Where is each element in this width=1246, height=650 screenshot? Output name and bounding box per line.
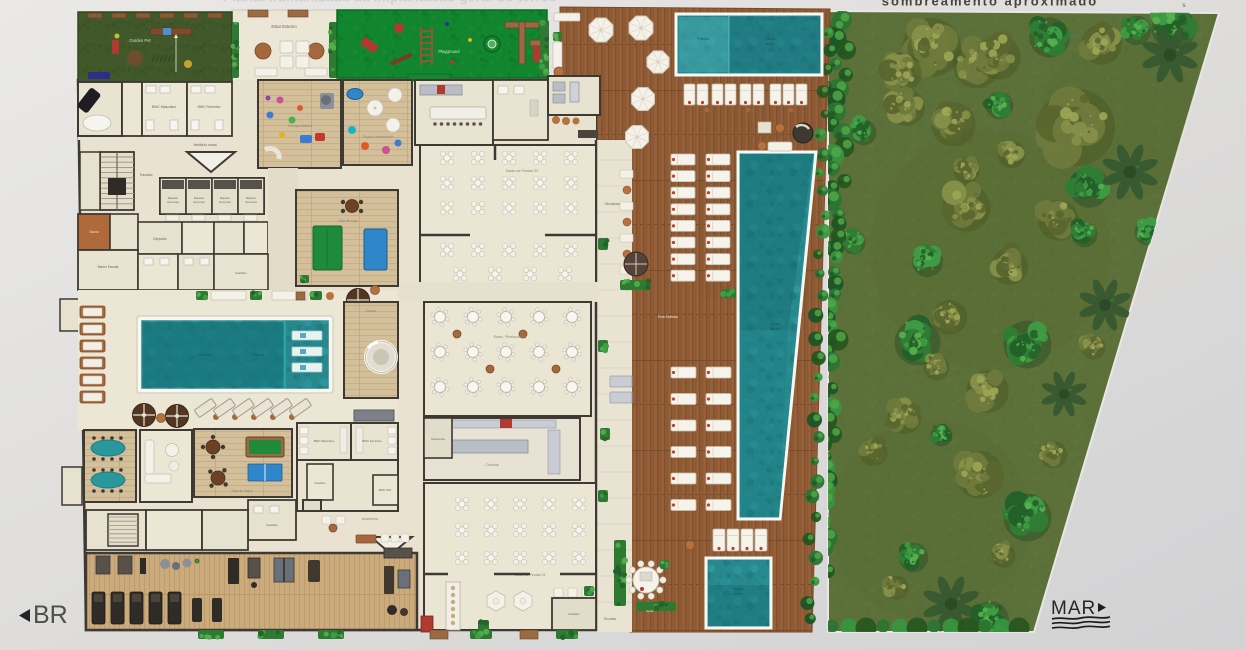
svg-text:Sala de Yoga: Sala de Yoga	[338, 219, 358, 223]
svg-text:Piscina: Piscina	[733, 587, 744, 591]
svg-text:adulto: adulto	[766, 42, 775, 46]
svg-text:Travador: Travador	[139, 173, 153, 177]
svg-text:sombreamento aproximado: sombreamento aproximado	[882, 0, 1099, 9]
svg-text:Playground: Playground	[438, 49, 460, 54]
svg-text:Vestibulo social: Vestibulo social	[193, 143, 217, 147]
svg-text:Gourmet: Gourmet	[193, 200, 205, 204]
svg-text:Brinquedoteca: Brinquedoteca	[288, 124, 311, 128]
svg-text:Encosta: Encosta	[604, 617, 616, 621]
svg-text:Vestiario: Vestiario	[235, 271, 247, 275]
svg-text:Salao de Festas 02: Salao de Festas 02	[506, 169, 539, 173]
svg-text:Deposito: Deposito	[153, 237, 166, 241]
svg-text:MAR: MAR	[1051, 598, 1096, 619]
svg-text:s: s	[1183, 3, 1186, 9]
svg-text:Garden Pet: Garden Pet	[129, 38, 151, 43]
svg-text:Estar Externo: Estar Externo	[271, 24, 297, 29]
svg-text:Piscina: Piscina	[199, 352, 213, 357]
svg-text:BWC PcD: BWC PcD	[379, 488, 392, 492]
svg-text:Estar: Estar	[646, 609, 653, 613]
svg-text:Planta humanizada da implantac: Planta humanizada da implantacao geral d…	[223, 0, 558, 5]
svg-text:Cozinha: Cozinha	[485, 463, 498, 467]
svg-text:Sauna: Sauna	[89, 230, 98, 234]
svg-text:Banho Escada: Banho Escada	[98, 265, 119, 269]
svg-text:Piscina: Piscina	[252, 353, 264, 357]
svg-text:Circulacao: Circulacao	[604, 202, 619, 206]
svg-text:Deck Molhado: Deck Molhado	[658, 315, 679, 319]
svg-text:Estar / Restaurante: Estar / Restaurante	[494, 335, 527, 339]
svg-text:infantil: infantil	[733, 592, 743, 596]
svg-text:Despensa: Despensa	[431, 437, 445, 441]
svg-text:Gourmet: Gourmet	[219, 200, 231, 204]
svg-text:Prainha: Prainha	[698, 37, 709, 41]
svg-text:Academia: Academia	[362, 517, 378, 521]
svg-text:BWC Feminino: BWC Feminino	[362, 439, 382, 443]
svg-text:BR: BR	[33, 601, 68, 629]
svg-text:BWC Feminino: BWC Feminino	[198, 105, 221, 109]
svg-text:Piscina: Piscina	[765, 37, 776, 41]
svg-text:Piscina: Piscina	[770, 322, 781, 326]
svg-text:BWC Masculino: BWC Masculino	[152, 105, 176, 109]
svg-text:adulto: adulto	[771, 327, 780, 331]
svg-text:BWC Masculino: BWC Masculino	[314, 439, 335, 443]
svg-text:Espaco adolescente: Espaco adolescente	[363, 135, 394, 139]
svg-text:Sauna: Sauna	[366, 309, 376, 313]
svg-text:Vestiario: Vestiario	[568, 612, 580, 616]
svg-text:Gourmet: Gourmet	[245, 200, 257, 204]
svg-text:Gourmet: Gourmet	[167, 200, 179, 204]
svg-text:Fraldario: Fraldario	[314, 481, 325, 485]
svg-text:Vestiario: Vestiario	[266, 523, 278, 527]
svg-text:Sala de Jogos: Sala de Jogos	[231, 489, 253, 493]
